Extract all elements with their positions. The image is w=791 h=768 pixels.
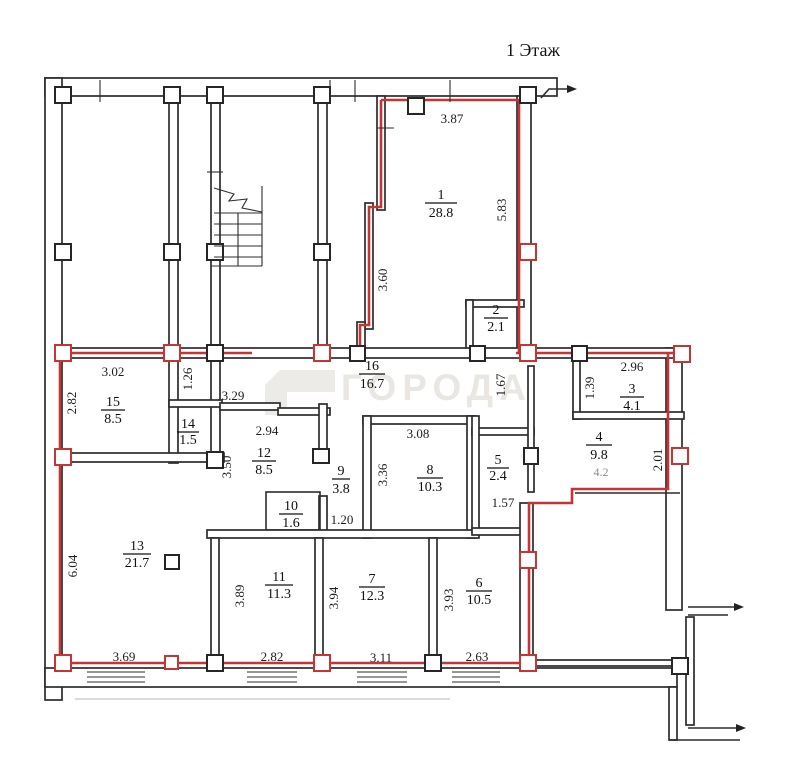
dim-3-36: 3.36 xyxy=(375,463,390,486)
room-9-area: 3.8 xyxy=(332,482,350,497)
room-12-number: 12 xyxy=(257,446,271,461)
room-13-area: 21.7 xyxy=(125,556,150,571)
room-label-14: 14 1.5 xyxy=(177,417,199,448)
room-7-number: 7 xyxy=(369,572,376,587)
room-label-7: 7 12.3 xyxy=(359,572,385,604)
room-label-11: 11 11.3 xyxy=(265,570,293,602)
room-label-10: 10 1.6 xyxy=(279,499,303,531)
dim-2-82-bottom: 2.82 xyxy=(261,649,284,664)
dim-1-57: 1.57 xyxy=(492,495,515,510)
dim-3-02: 3.02 xyxy=(102,364,125,379)
room-label-5: 5 2.4 xyxy=(487,453,509,484)
room-5-number: 5 xyxy=(495,453,502,468)
room-7-area: 12.3 xyxy=(360,589,385,604)
floor-plan-drawing: ГОРОДА xyxy=(0,0,791,768)
dim-1-39: 1.39 xyxy=(582,377,597,400)
room-4-number: 4 xyxy=(596,430,603,445)
room-6-area: 10.5 xyxy=(467,593,492,608)
side-door-arrow-icon xyxy=(688,603,744,615)
room-label-13: 13 21.7 xyxy=(123,539,151,571)
dim-3-08: 3.08 xyxy=(407,426,430,441)
room-10-area: 1.6 xyxy=(282,516,300,531)
dim-1-67: 1.67 xyxy=(493,373,508,396)
room-14-area: 1.5 xyxy=(179,433,197,448)
dim-2-82-left: 2.82 xyxy=(64,392,79,415)
room-2-number: 2 xyxy=(493,303,500,318)
dim-3-94: 3.94 xyxy=(326,586,341,609)
dim-3-89: 3.89 xyxy=(232,585,247,608)
room-11-area: 11.3 xyxy=(267,587,291,602)
room-1-number: 1 xyxy=(438,188,445,203)
dim-3-69: 3.69 xyxy=(113,649,136,664)
room-label-8: 8 10.3 xyxy=(417,463,443,495)
room-label-6: 6 10.5 xyxy=(466,576,492,608)
room-1-area: 28.8 xyxy=(429,206,454,221)
room-6-number: 6 xyxy=(476,576,483,591)
room-label-4: 4 9.8 xyxy=(586,430,612,463)
floor-title: 1 Этаж xyxy=(506,40,560,60)
dim-4-2-partial: 4.2 xyxy=(594,465,609,479)
room-14-number: 14 xyxy=(181,417,195,432)
room-3-area: 4.1 xyxy=(623,399,641,414)
dim-3-87: 3.87 xyxy=(441,111,464,126)
dim-2-94: 2.94 xyxy=(256,423,279,438)
room-11-number: 11 xyxy=(272,570,285,585)
dim-3-11: 3.11 xyxy=(370,650,392,665)
room-5-area: 2.4 xyxy=(489,469,507,484)
room-8-number: 8 xyxy=(427,463,434,478)
room-8-area: 10.3 xyxy=(418,480,443,495)
dim-3-50: 3.50 xyxy=(219,456,234,479)
dim-2-63: 2.63 xyxy=(466,649,489,664)
room-label-15: 15 8.5 xyxy=(101,395,125,427)
room-label-3: 3 4.1 xyxy=(620,382,644,414)
dim-1-26: 1.26 xyxy=(180,367,195,390)
dim-3-93: 3.93 xyxy=(441,589,456,612)
side-door-arrow-icon xyxy=(669,724,746,740)
room-16-number: 16 xyxy=(365,359,379,374)
room-10-number: 10 xyxy=(284,499,298,514)
room-label-1: 1 28.8 xyxy=(425,188,457,221)
room-4-area: 9.8 xyxy=(590,448,608,463)
room-16-area: 16.7 xyxy=(360,377,385,392)
room-15-area: 8.5 xyxy=(104,412,122,427)
dim-3-60: 3.60 xyxy=(375,269,390,292)
room-13-number: 13 xyxy=(130,539,144,554)
dim-6-04: 6.04 xyxy=(65,554,80,577)
dim-1-20: 1.20 xyxy=(331,512,354,527)
room-label-12: 12 8.5 xyxy=(252,446,276,478)
dim-5-83: 5.83 xyxy=(494,199,509,222)
floor-plan-page: ГОРОДА xyxy=(0,0,791,768)
dim-2-01: 2.01 xyxy=(650,449,665,472)
room-12-area: 8.5 xyxy=(255,463,273,478)
pilaster xyxy=(313,449,329,463)
dim-2-96: 2.96 xyxy=(621,359,644,374)
outer-walls xyxy=(45,78,694,740)
room-9-number: 9 xyxy=(338,464,345,479)
room-3-number: 3 xyxy=(629,382,636,397)
pilaster xyxy=(524,448,538,464)
room-2-area: 2.1 xyxy=(487,320,505,335)
room-15-number: 15 xyxy=(106,395,120,410)
dim-3-29: 3.29 xyxy=(222,388,245,403)
room-label-9: 9 3.8 xyxy=(332,464,350,497)
